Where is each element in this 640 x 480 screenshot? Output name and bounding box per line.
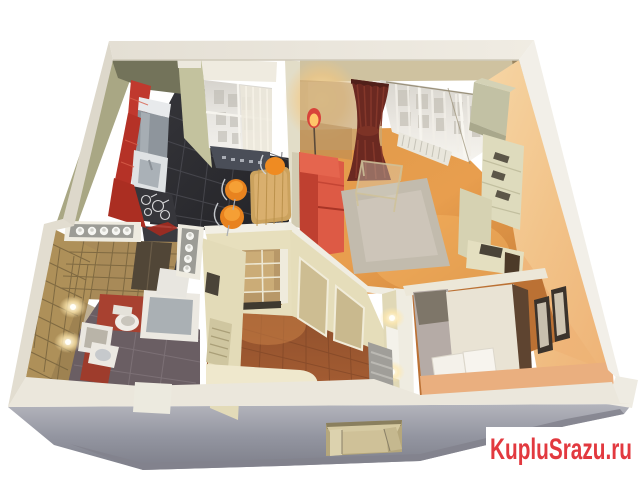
svg-text:KupluSrazu.ru: KupluSrazu.ru (490, 433, 632, 466)
